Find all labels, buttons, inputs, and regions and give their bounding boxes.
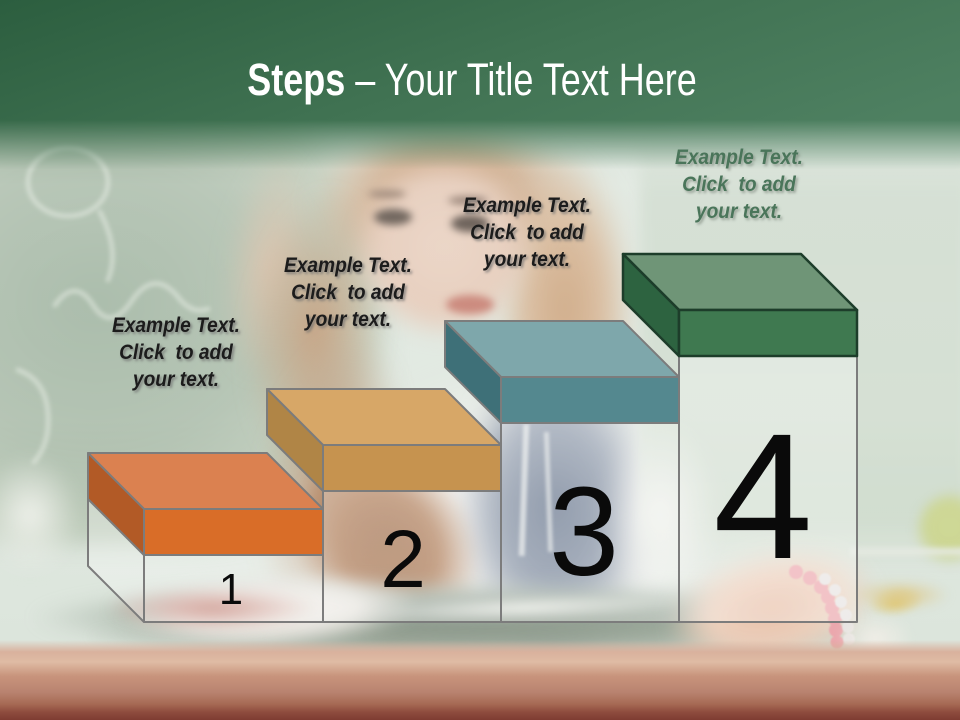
svg-text:1: 1 — [219, 566, 243, 614]
svg-text:4: 4 — [713, 396, 813, 596]
svg-text:2: 2 — [380, 514, 426, 605]
svg-text:3: 3 — [549, 461, 619, 602]
